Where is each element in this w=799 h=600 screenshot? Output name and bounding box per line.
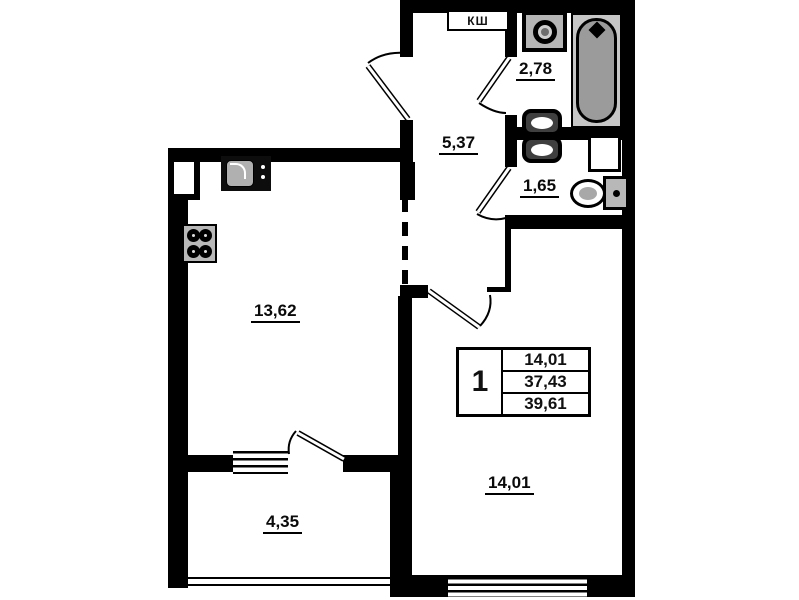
- wall-top: [400, 0, 635, 13]
- info-apartment-area: 37,43: [503, 372, 588, 394]
- toilet-door-arc: [477, 214, 506, 219]
- kitchen-shaft: [168, 156, 200, 200]
- bathroom-door-arc: [479, 103, 506, 113]
- wall-kitchen-bottom-left: [168, 455, 235, 472]
- room-label-hallway: 5,37: [439, 133, 478, 155]
- room-label-bathroom: 2,78: [516, 59, 555, 81]
- window-kitchen-balcony: [233, 451, 288, 474]
- room-label-kitchen-living: 13,62: [251, 301, 300, 323]
- window-bedroom: [448, 577, 587, 597]
- stove-icon: [182, 224, 217, 263]
- wall-right: [622, 0, 635, 597]
- balcony-door-arc: [289, 431, 296, 454]
- wall-left: [168, 148, 188, 588]
- bathtub-icon: [571, 13, 622, 128]
- wall-kitchen-top: [168, 148, 413, 162]
- wall-bath-hall-mid: [505, 115, 517, 167]
- toilet-tank-icon: [603, 176, 629, 210]
- vent-shaft: [588, 135, 621, 172]
- floor-plan: КШ: [0, 0, 799, 600]
- kitchen-sink-icon: [221, 156, 271, 191]
- room-label-toilet: 1,65: [520, 176, 559, 198]
- wall-kitchen-right-lower: [398, 296, 412, 456]
- shaft-label: КШ: [467, 14, 488, 28]
- info-total-area: 39,61: [503, 394, 588, 414]
- washing-machine-drum-icon: [533, 20, 557, 44]
- bedroom-door-arc: [480, 295, 491, 326]
- info-living-area: 14,01: [503, 350, 588, 372]
- wall-toilet-bottom: [505, 215, 635, 229]
- info-rooms-count: 1: [459, 350, 503, 414]
- shaft-box: КШ: [447, 10, 509, 31]
- apartment-info-table: 1 14,01 37,43 39,61: [456, 347, 591, 417]
- wall-partition-horizontal: [487, 287, 511, 292]
- wall-hall-left-upper: [400, 0, 413, 57]
- sink-bathroom-icon: [522, 109, 562, 136]
- washing-machine-icon: [522, 11, 567, 52]
- wall-partition-vertical: [505, 229, 511, 291]
- sink-toilet-icon: [522, 136, 562, 163]
- toilet-bowl-icon: [570, 179, 606, 208]
- room-label-balcony: 4,35: [263, 512, 302, 534]
- balcony-glazing: [188, 577, 390, 586]
- opening-dashed-kitchen-hall: [402, 198, 408, 288]
- room-label-bedroom: 14,01: [485, 473, 534, 495]
- wall-kitchen-right-upper: [400, 162, 415, 200]
